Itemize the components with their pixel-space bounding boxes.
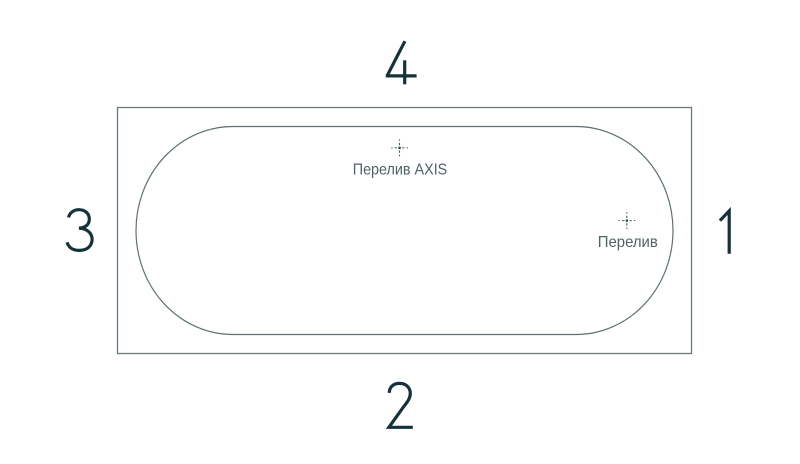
svg-text:Перелив: Перелив bbox=[598, 234, 658, 251]
svg-text:Перелив AXIS: Перелив AXIS bbox=[353, 162, 448, 179]
